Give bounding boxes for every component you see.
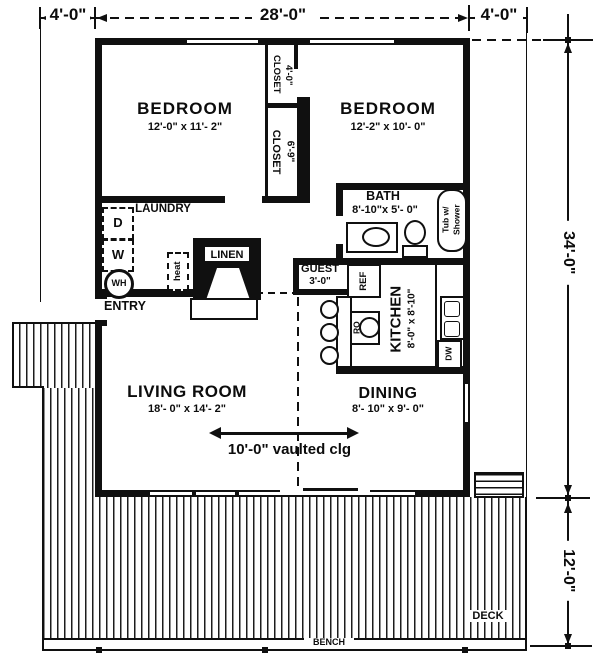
dim-connector	[472, 39, 542, 41]
dim-node	[565, 495, 571, 501]
room-divider	[297, 297, 299, 489]
closet-top-label: CLOSET	[271, 44, 281, 104]
extension-line-deck-edge	[526, 33, 527, 497]
floor-plan: 4'-0" 28'-0" 4'-0" 34'-0" 12'-0" DECK BE…	[0, 0, 600, 661]
vaulted-arrow-right	[347, 427, 359, 439]
window	[150, 490, 192, 497]
bath-size: 8'-10"x 5'- 0"	[341, 204, 429, 216]
deck-edge	[42, 388, 44, 498]
bedroom-right-size: 12'-2" x 10'- 0"	[308, 121, 468, 133]
water-heater-label: WH	[104, 279, 134, 289]
stool	[320, 346, 339, 365]
wall-closet-left	[265, 45, 268, 197]
refrigerator-label: REF	[359, 266, 369, 296]
deck-edge	[525, 497, 527, 651]
guest-label: GUEST	[294, 263, 346, 275]
window	[196, 490, 235, 497]
dim-arrow	[564, 503, 572, 513]
sliding-door	[303, 488, 358, 491]
bench-label: BENCH	[304, 638, 354, 648]
linen-label: LINEN	[203, 249, 251, 261]
stool	[320, 323, 339, 342]
vaulted-arrow-left	[209, 427, 221, 439]
wall-left	[95, 322, 102, 497]
side-deck	[43, 388, 95, 498]
door-threshold	[280, 495, 370, 497]
deck-label: DECK	[466, 610, 510, 622]
living-room-label: LIVING ROOM	[108, 383, 266, 402]
sink-basin	[444, 301, 460, 317]
window	[187, 38, 258, 45]
bedroom-left-label: BEDROOM	[105, 100, 265, 119]
heater-label: heat	[173, 254, 183, 288]
window	[310, 38, 394, 45]
toilet-tank	[402, 245, 428, 258]
toilet-bowl	[404, 220, 426, 245]
bath-label: BATH	[353, 190, 413, 204]
dim-label-side-height: 34'-0"	[559, 221, 577, 285]
deck-edge	[12, 322, 95, 324]
deck-edge	[12, 322, 14, 388]
vaulted-arrow-line	[220, 432, 348, 435]
dim-arrow	[564, 485, 572, 495]
bench-rail	[43, 649, 527, 651]
bench-post	[96, 647, 102, 653]
tub-label: Shower	[452, 193, 461, 247]
closet-top-size: 4'-0"	[283, 54, 293, 96]
bath-sink	[362, 227, 390, 247]
extension-line-left	[40, 29, 41, 302]
wall-closet-bottom	[262, 196, 310, 203]
dim-tick	[468, 5, 470, 31]
dim-node	[565, 37, 571, 43]
deck-edge	[12, 386, 44, 388]
wall-bottom	[95, 490, 150, 497]
living-room-size: 18'- 0" x 14'- 2"	[108, 403, 266, 415]
wall-bedroom1-bottom	[95, 196, 225, 203]
window	[370, 490, 415, 497]
guest-size: 3'-0"	[294, 276, 346, 287]
wall-top	[95, 38, 187, 45]
entry-label: ENTRY	[98, 300, 152, 314]
room-divider	[256, 292, 294, 294]
wall-left	[95, 38, 102, 298]
dim-node	[565, 643, 571, 649]
vaulted-ceiling-note: 10'-0" vaulted clg	[207, 442, 372, 459]
dim-tick	[94, 7, 96, 29]
dining-label: DINING	[342, 385, 434, 403]
main-deck	[43, 497, 527, 638]
kitchen-label: KITCHEN	[388, 271, 405, 368]
deck-steps	[474, 472, 524, 498]
bench-post	[462, 647, 468, 653]
deck-edge	[42, 497, 44, 651]
bedroom-left-size: 12'-0" x 11'- 2"	[105, 121, 265, 133]
tub-label: Tub w/	[441, 193, 450, 247]
wall-right	[463, 422, 470, 497]
wall-top	[258, 38, 310, 45]
wall-top	[394, 38, 470, 45]
dim-arrow	[97, 14, 107, 22]
dining-size: 8'- 10" x 9'- 0"	[338, 403, 438, 415]
sink-basin	[444, 321, 460, 337]
bedroom-right-label: BEDROOM	[308, 100, 468, 119]
hearth	[190, 298, 258, 320]
closet-lower-size: 6'-9"	[285, 130, 296, 174]
bench-post	[262, 647, 268, 653]
wall-closet-stub	[294, 45, 298, 69]
dim-arrow	[564, 43, 572, 53]
dim-label-top-span: 28'-0"	[252, 6, 314, 25]
dim-tick	[530, 645, 592, 647]
window	[463, 384, 470, 422]
burner	[359, 317, 380, 338]
dim-label-deck-depth: 12'-0"	[559, 541, 577, 601]
washer-label: W	[102, 248, 134, 262]
bench-rail	[43, 638, 527, 640]
wall-bottom	[415, 490, 470, 497]
closet-lower-label: CLOSET	[270, 119, 282, 185]
dim-label-top-left: 4'-0"	[46, 6, 90, 25]
kitchen-size: 8'-0" x 8'-10"	[407, 276, 418, 362]
dim-tick	[526, 7, 528, 33]
side-deck	[12, 322, 95, 388]
dryer-label: D	[102, 216, 134, 230]
stool	[320, 300, 339, 319]
window	[239, 490, 280, 497]
dim-label-top-right: 4'-0"	[475, 6, 523, 25]
wall-guest-bottom	[293, 289, 347, 295]
dim-tick	[536, 497, 590, 499]
dim-arrow	[458, 14, 468, 22]
laundry-label: LAUNDRY	[131, 203, 195, 216]
range-oven-label: RO	[352, 315, 361, 341]
dishwasher-label: DW	[444, 342, 453, 366]
